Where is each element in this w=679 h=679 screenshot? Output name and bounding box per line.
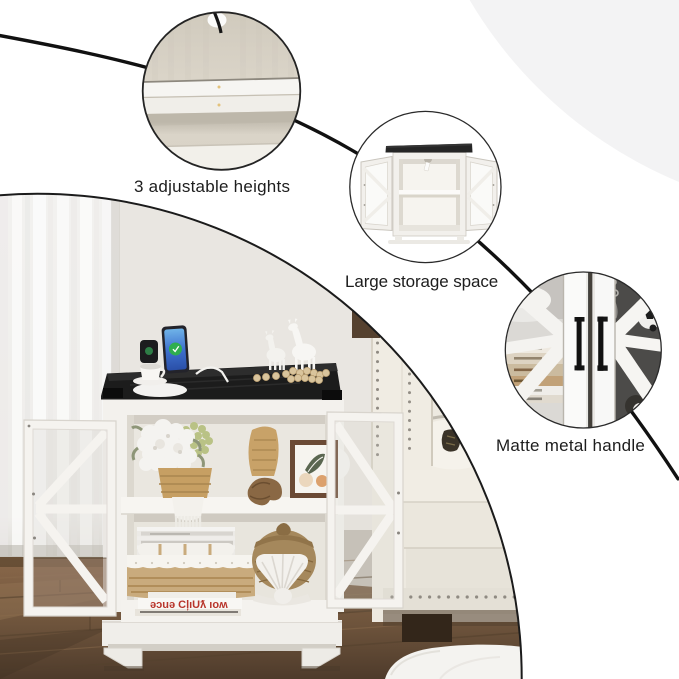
svg-text:3 adjustable heights: 3 adjustable heights (134, 177, 290, 196)
svg-text:Large storage space: Large storage space (345, 272, 498, 291)
svg-text:Matte metal handle: Matte metal handle (496, 436, 645, 455)
svg-text:əɔuə CļıUƛ ıoʍ: əɔuə CļıUƛ ıoʍ (150, 599, 228, 611)
